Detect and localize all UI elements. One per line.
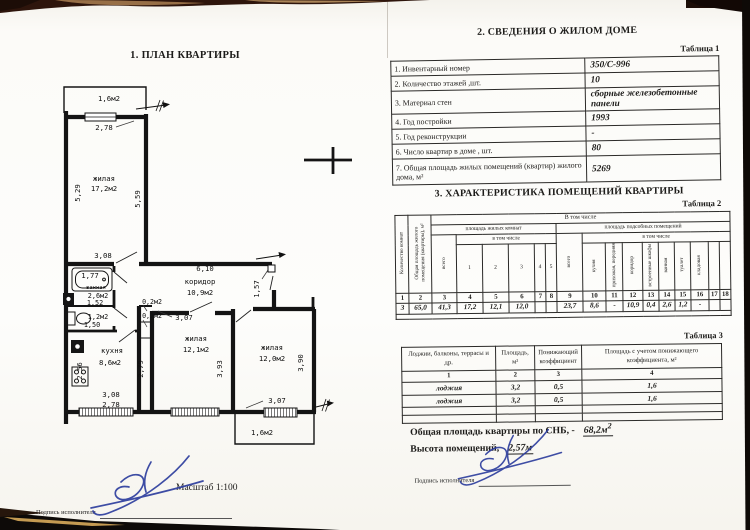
plan-label: 8,6м2 bbox=[99, 358, 121, 367]
plan-label: 3,07 bbox=[175, 313, 193, 322]
table1-label: 7. Общая площадь жилых помещений (кварти… bbox=[392, 156, 586, 185]
t2-col-total-area: Общая площадь жилого помещения (квартиры… bbox=[408, 215, 432, 293]
t2-aux-label: ванная bbox=[658, 242, 675, 290]
t2-col-number: 13 bbox=[643, 290, 659, 300]
bathroom-sink-icon bbox=[63, 293, 74, 305]
t2-col-number: 1 bbox=[396, 293, 409, 303]
plan-label: 12,0м2 bbox=[259, 354, 285, 363]
t3-header: Площадь с учетом понижающего коэффициент… bbox=[581, 343, 721, 369]
t2-data-cell: 10,9 bbox=[623, 300, 643, 311]
table1-row: 7. Общая площадь жилых помещений (кварти… bbox=[392, 154, 720, 185]
t2-aux-total: всего bbox=[556, 233, 583, 291]
t2-living-num: 1 bbox=[456, 244, 483, 292]
t2-col-number: 11 bbox=[606, 291, 623, 301]
kitchen-sink-icon bbox=[71, 340, 84, 353]
plan-label: 3,90 bbox=[296, 354, 305, 372]
scanned-document-page: 1. ПЛАН КВАРТИРЫ bbox=[0, 0, 750, 530]
t3-data-cell: лоджия bbox=[402, 382, 496, 395]
plan-label: 1,57 bbox=[252, 280, 261, 298]
t2-col-number: 3 bbox=[432, 293, 457, 303]
t2-living-num: 2 bbox=[482, 244, 509, 292]
plan-label: коридор bbox=[185, 277, 216, 286]
t2-data-cell: - bbox=[691, 300, 709, 311]
plan-label: 12,1м2 bbox=[183, 345, 209, 354]
signature-ink-left bbox=[85, 450, 220, 528]
plan-label: 17,2м2 bbox=[91, 184, 117, 193]
t2-col-number: 2 bbox=[409, 293, 432, 303]
plan-label: 3,93 bbox=[215, 360, 224, 378]
plan-label: 1,50 bbox=[84, 321, 100, 329]
t2-col-number: 12 bbox=[623, 290, 643, 300]
t3-data-cell: 0,5 bbox=[535, 393, 582, 406]
table2-room-characteristics: Количество комнат Общая площадь жилого п… bbox=[394, 211, 731, 320]
plan-label: 10,9м2 bbox=[187, 288, 213, 297]
t2-aux-label bbox=[708, 241, 720, 289]
plan-label: 1,6м2 bbox=[251, 428, 273, 437]
plan-label: 2,79 bbox=[136, 360, 145, 378]
t3-col-number: 3 bbox=[535, 369, 582, 381]
t2-col-number: 14 bbox=[659, 290, 675, 300]
plan-label: 5,59 bbox=[133, 190, 142, 208]
t3-data-cell bbox=[582, 411, 722, 421]
t2-aux-label bbox=[719, 241, 731, 289]
table3-loggias: Лоджии, балконы, террасы и др.Площадь, м… bbox=[401, 343, 723, 424]
total-area-value: 68,2м2 bbox=[583, 421, 613, 437]
t3-header: Площадь, м² bbox=[496, 346, 535, 370]
table1-caption: Таблица 1 bbox=[387, 43, 719, 57]
t2-data-cell: 12,1 bbox=[483, 302, 509, 313]
t2-data-cell: 0,4 bbox=[643, 300, 659, 311]
plan-label: 1,77 bbox=[81, 271, 99, 280]
t2-data-cell: 2,6 bbox=[659, 300, 675, 311]
t2-col-number: 15 bbox=[675, 290, 691, 300]
t3-data-cell: 3,2 bbox=[496, 393, 535, 406]
t2-col-number: 8 bbox=[546, 291, 557, 301]
t2-aux-label: туалет bbox=[674, 242, 691, 290]
t2-living-num: 5 bbox=[545, 243, 557, 291]
t3-header: Понижающий коэффициент bbox=[534, 345, 581, 370]
t2-col-number: 7 bbox=[535, 292, 546, 302]
plan-label: жилая bbox=[93, 174, 115, 183]
plan-label: 2,78 bbox=[95, 123, 113, 132]
t2-col-number: 10 bbox=[583, 291, 606, 301]
scan-edge-right bbox=[740, 0, 750, 530]
plan-label: 3,08 bbox=[94, 251, 112, 260]
plan-label: 1,2м2 bbox=[88, 313, 108, 321]
t2-aux-label: кладовая bbox=[690, 242, 709, 290]
t2-living-total: всего bbox=[431, 235, 457, 293]
t2-data-cell bbox=[709, 299, 720, 310]
t2-data-cell bbox=[720, 299, 731, 310]
t3-data-cell: лоджия bbox=[402, 394, 496, 407]
t2-col-number: 9 bbox=[557, 291, 583, 301]
t2-data-cell: 23,7 bbox=[557, 301, 583, 312]
table1-building-info: 1. Инвентарный номер350/С-9962. Количест… bbox=[390, 55, 721, 185]
plan-label: 0,2м2 bbox=[142, 312, 162, 320]
t2-data-cell: 12,0 bbox=[509, 302, 535, 313]
t2-col-number: 6 bbox=[509, 292, 535, 302]
t2-col-number: 4 bbox=[457, 292, 483, 302]
t2-data-cell: 17,2 bbox=[457, 302, 483, 313]
plan-label: жилая bbox=[261, 343, 283, 352]
t2-col-number: 16 bbox=[691, 290, 709, 300]
t2-col-rooms-count: Количество комнат bbox=[395, 215, 409, 293]
t2-data-cell: - bbox=[606, 301, 623, 312]
plan-label: 3,08 bbox=[102, 390, 120, 399]
table1-value: 5269 bbox=[586, 154, 720, 182]
t3-data-cell bbox=[496, 414, 535, 422]
section2-title: 2. СВЕДЕНИЯ О ЖИЛОМ ДОМЕ bbox=[387, 24, 727, 39]
plan-label: ванная bbox=[86, 285, 106, 291]
t2-data-cell: 1,2 bbox=[675, 300, 691, 311]
t3-data-cell: 3,2 bbox=[496, 381, 535, 394]
t2-aux-label: встроенные шкафы bbox=[642, 242, 659, 290]
t2-data-cell: 65,0 bbox=[409, 303, 432, 314]
t3-col-number: 2 bbox=[496, 370, 535, 382]
t2-data-cell: 8,6 bbox=[583, 301, 606, 312]
plan-label: кухня bbox=[101, 346, 123, 355]
table1-value: сборные железобетонные панели bbox=[585, 86, 719, 111]
t2-col-number: 17 bbox=[709, 289, 720, 299]
t2-living-num: 3 bbox=[508, 244, 535, 292]
plan-label: 5,29 bbox=[73, 184, 82, 202]
plan-label: 1,52 bbox=[87, 299, 103, 307]
signature-ink-right bbox=[452, 424, 578, 498]
t2-data-cell bbox=[546, 301, 557, 312]
table1-label: 3. Материал стен bbox=[391, 88, 585, 114]
t2-data-cell: 3 bbox=[396, 303, 409, 314]
plan-label: 0,2м2 bbox=[142, 298, 162, 306]
t2-aux-label: коридор bbox=[622, 242, 643, 290]
table2-caption: Таблица 2 bbox=[389, 198, 721, 212]
t2-col-number: 5 bbox=[483, 292, 509, 302]
t2-aux-label: кухня bbox=[582, 243, 606, 291]
t3-data-cell: 0,5 bbox=[535, 381, 582, 394]
plan-label: 3,07 bbox=[268, 396, 286, 405]
plan-label: 2,56 bbox=[75, 362, 84, 380]
t2-col-number: 18 bbox=[720, 289, 731, 299]
table3-caption: Таблица 3 bbox=[391, 330, 723, 344]
floor-plan-drawing: 1,6м22,78жилая17,2м25,295,593,081,77ванн… bbox=[40, 75, 360, 465]
plan-label: 2,78 bbox=[102, 400, 120, 409]
plan-title: 1. ПЛАН КВАРТИРЫ bbox=[60, 50, 310, 61]
t2-living-num: 4 bbox=[534, 244, 546, 292]
t2-data-cell: 41,3 bbox=[432, 303, 457, 314]
t2-data-cell bbox=[535, 302, 546, 313]
t2-aux-label: прихожая, передняя bbox=[605, 243, 623, 291]
plan-label: 6,10 bbox=[196, 264, 214, 273]
plan-label: 1,6м2 bbox=[98, 94, 120, 103]
plan-label: жилая bbox=[185, 334, 207, 343]
right-column: 2. СВЕДЕНИЯ О ЖИЛОМ ДОМЕ Таблица 1 1. Ин… bbox=[387, 0, 741, 530]
paper-fold-line bbox=[387, 0, 388, 58]
t3-header: Лоджии, балконы, террасы и др. bbox=[402, 346, 496, 371]
t3-data-cell bbox=[535, 413, 582, 422]
